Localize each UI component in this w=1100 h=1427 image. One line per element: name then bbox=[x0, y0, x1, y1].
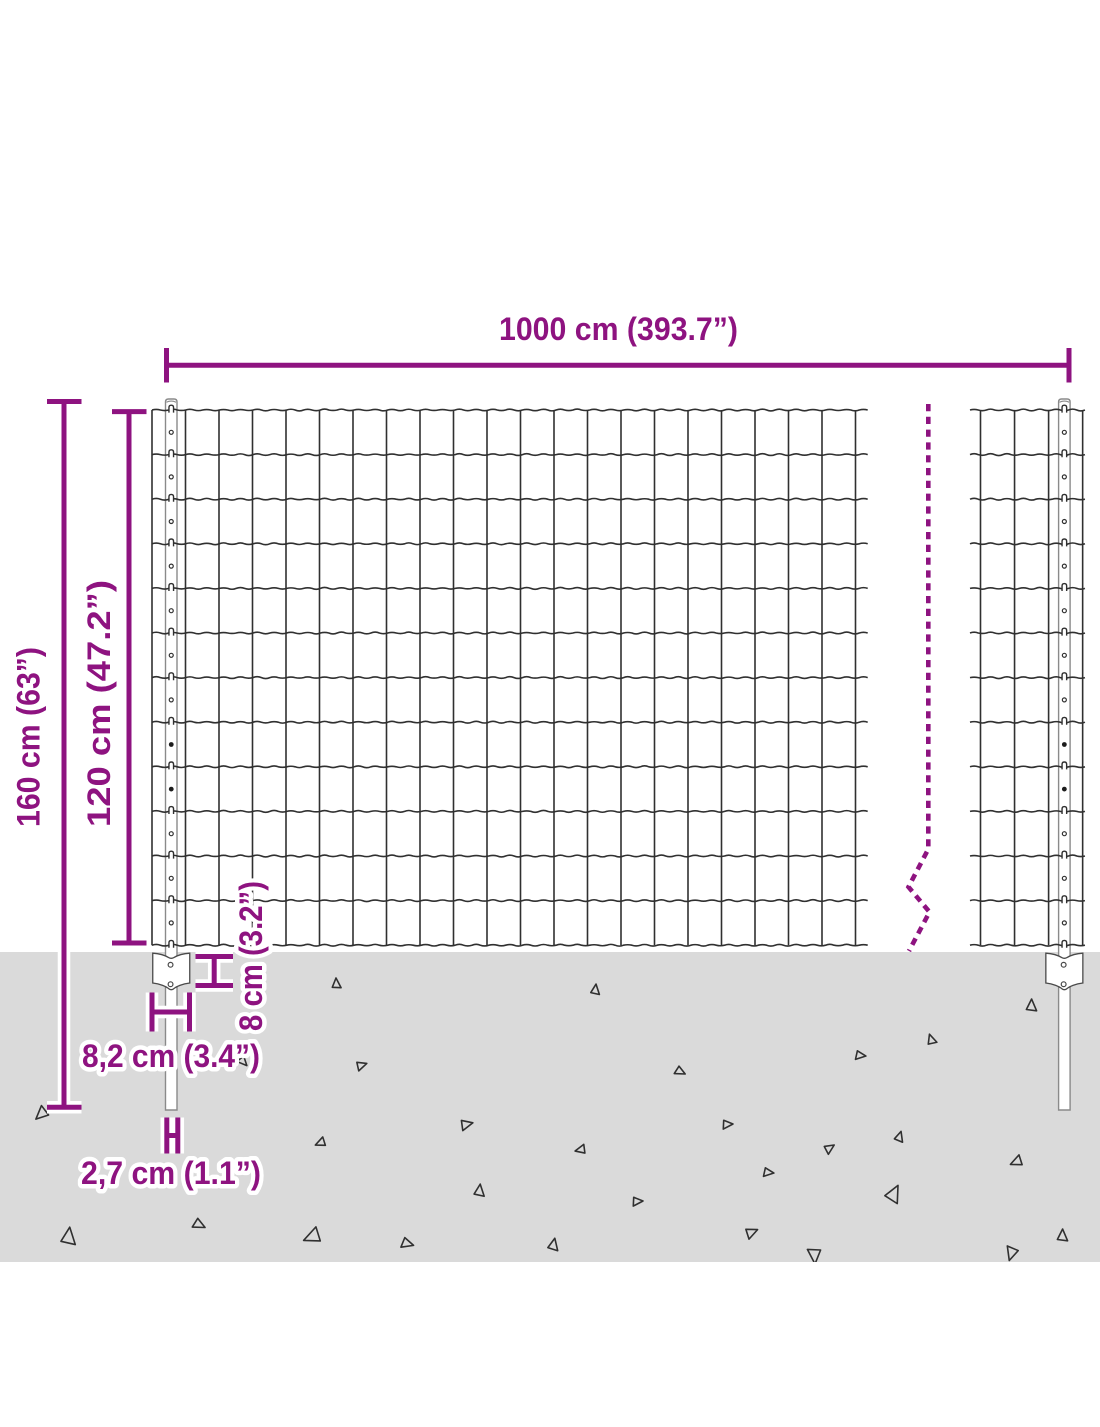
svg-text:120 cm (47.2”): 120 cm (47.2”) bbox=[81, 580, 117, 827]
svg-text:2,7 cm (1.1”): 2,7 cm (1.1”) bbox=[81, 1155, 261, 1191]
svg-text:8 cm (3.2”): 8 cm (3.2”) bbox=[233, 881, 269, 1031]
svg-text:160 cm (63”): 160 cm (63”) bbox=[10, 647, 46, 827]
svg-text:1000 cm (393.7”): 1000 cm (393.7”) bbox=[499, 311, 738, 347]
svg-text:8,2 cm (3.4”): 8,2 cm (3.4”) bbox=[82, 1038, 260, 1074]
